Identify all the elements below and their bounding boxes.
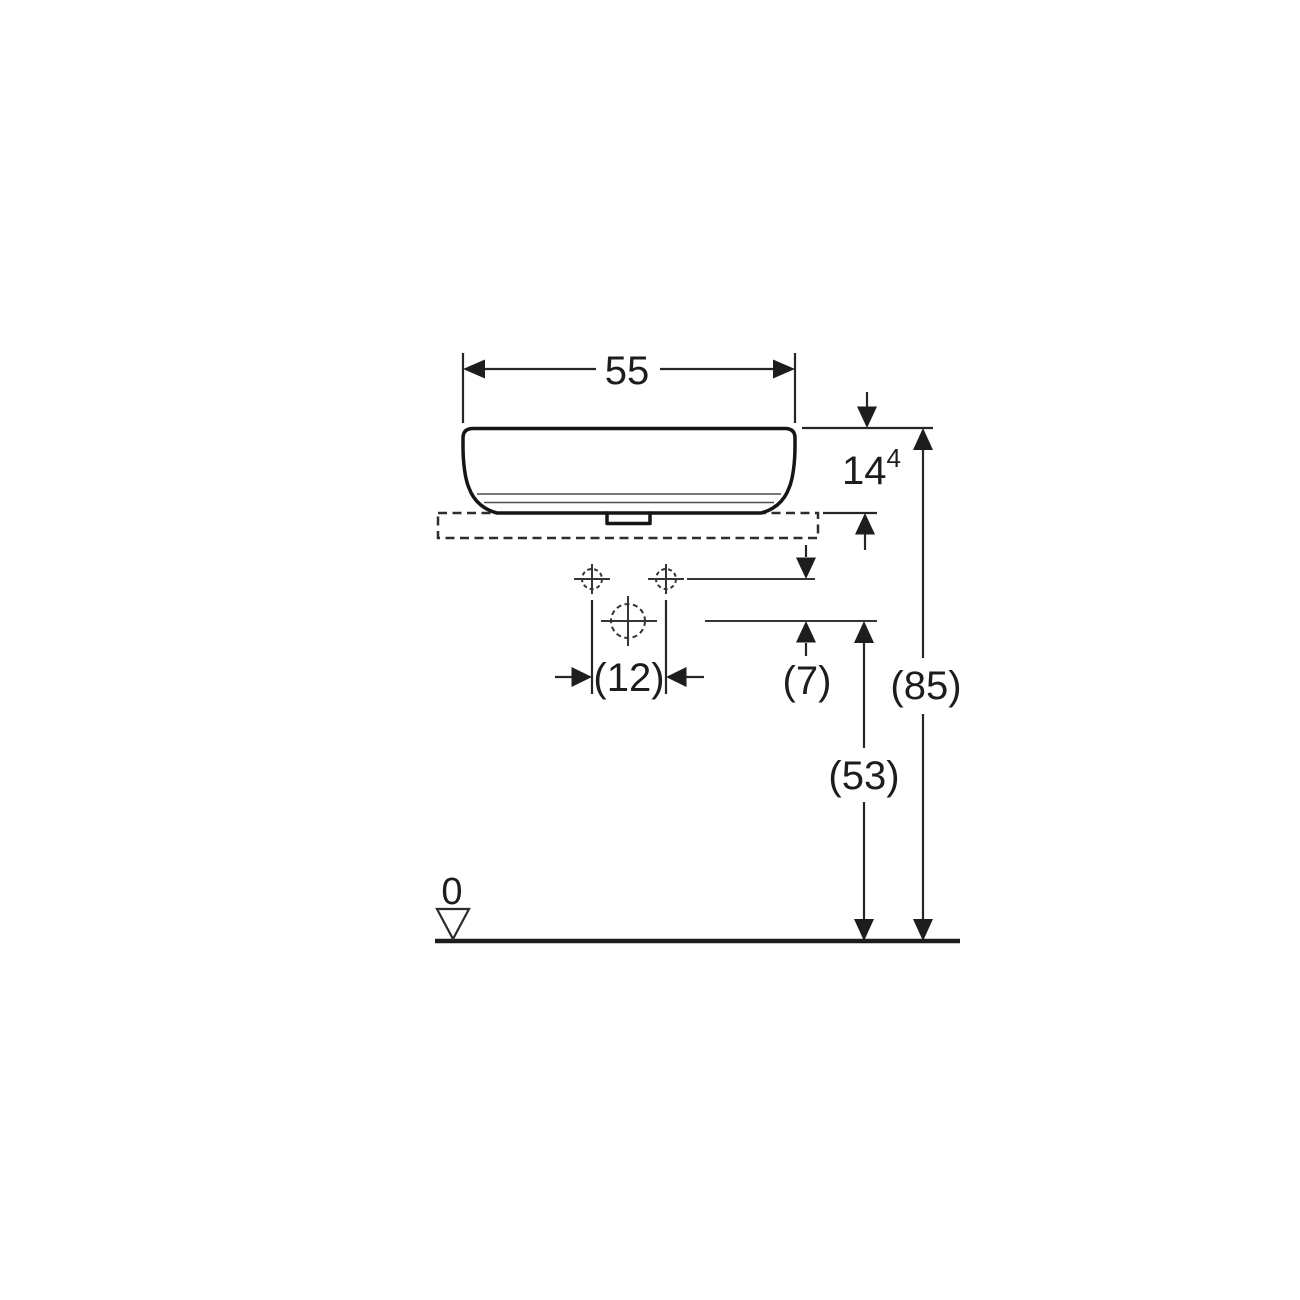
arrow-up-icon [796, 621, 816, 643]
dim-basin-height: 144 [802, 392, 933, 550]
countertop-dashed-outline [438, 513, 818, 538]
dim-width: 55 [463, 349, 795, 423]
basin-outline [463, 429, 795, 514]
floor: 0 [435, 871, 960, 941]
washbasin-dimension-drawing: 55 144 [0, 0, 1300, 1300]
arrow-down-icon [857, 407, 877, 429]
basin [463, 429, 795, 524]
faucet-hole-marker-left [574, 564, 610, 594]
dim-width-label: 55 [605, 349, 650, 393]
dim-hole-row-offset-label: (7) [783, 659, 832, 703]
dim-hole-row-offset: (7) [783, 545, 832, 703]
arrow-left-icon [463, 360, 485, 379]
arrow-right-icon [773, 360, 795, 379]
dim-total-height: (85) [890, 428, 961, 941]
dim-counter-axis-height-label: (53) [828, 754, 899, 798]
datum-zero-label: 0 [441, 871, 462, 913]
arrow-right-icon [572, 667, 593, 687]
arrow-up-icon [913, 428, 933, 450]
dim-basin-height-main: 14 [842, 449, 887, 493]
arrow-left-icon [666, 667, 687, 687]
dim-hole-spacing: (12) [555, 600, 704, 700]
arrow-down-icon [796, 558, 816, 580]
arrow-up-icon [855, 513, 875, 535]
arrow-up-icon [854, 621, 874, 643]
arrow-down-icon [913, 919, 933, 941]
faucet-hole-marker-right [648, 564, 684, 594]
dim-total-height-label: (85) [890, 664, 961, 708]
dim-basin-height-label: 144 [842, 443, 901, 493]
datum-triangle-icon [437, 909, 469, 939]
dim-hole-spacing-label: (12) [593, 656, 664, 700]
arrow-down-icon [854, 919, 874, 941]
faucet-hole-marker-center [601, 596, 657, 646]
dim-basin-height-sup: 4 [887, 443, 901, 473]
page: 55 144 [0, 0, 1300, 1300]
dim-counter-axis-height: (53) [828, 621, 899, 941]
